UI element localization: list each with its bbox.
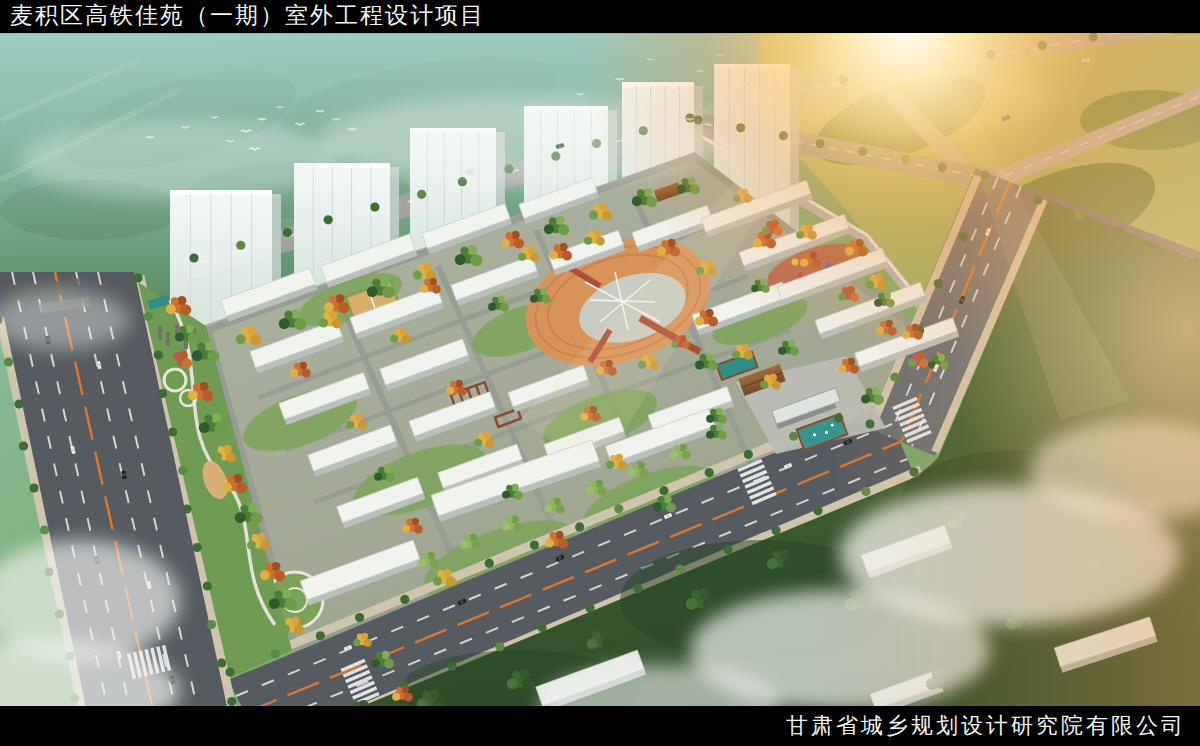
aerial-rendering-image — [0, 0, 1200, 746]
credit-bar: 甘肃省城乡规划设计研究院有限公司 — [0, 706, 1200, 746]
title-bar: 麦积区高铁佳苑（一期）室外工程设计项目 — [0, 0, 1200, 33]
project-title: 麦积区高铁佳苑（一期）室外工程设计项目 — [10, 2, 485, 28]
poster: 麦积区高铁佳苑（一期）室外工程设计项目 甘肃省城乡规划设计研究院有限公司 — [0, 0, 1200, 746]
design-institute-credit: 甘肃省城乡规划设计研究院有限公司 — [786, 713, 1186, 738]
